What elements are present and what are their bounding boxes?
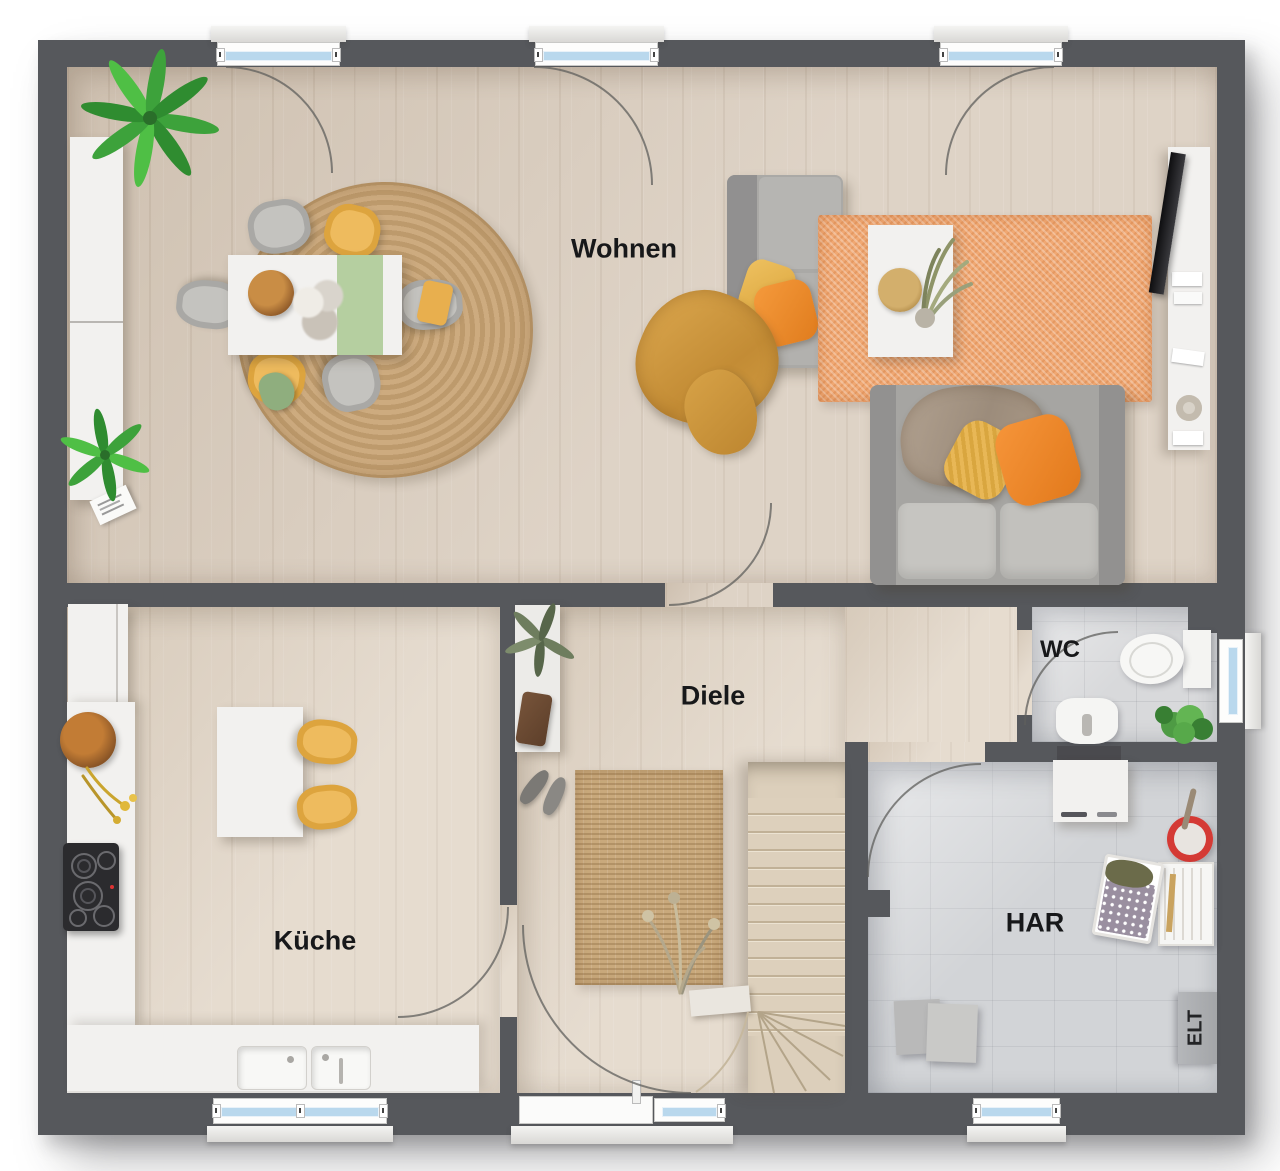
room-label-wohnen: Wohnen [571,234,677,265]
room-label-wc: WC [1040,636,1080,664]
window [217,42,340,66]
doorway-wohnen-diele [665,583,773,607]
faucet-icon [322,1054,329,1061]
floor-plan-canvas: Wohnen Küche Diele WC HAR ELT [0,0,1280,1171]
storage-box [926,1003,978,1063]
room-label-elt: ELT [1185,1010,1208,1046]
window-sill [967,1126,1066,1142]
cooktop [63,843,119,931]
wc-sink [1056,698,1118,744]
window-sill [211,26,346,42]
faucet-stem [339,1058,343,1084]
har-shelf [1158,862,1214,946]
room-diele-floor-arm [845,607,1017,742]
door-sill [511,1126,733,1144]
decor-dried-flowers [288,276,346,342]
room-label-har: HAR [1006,908,1065,939]
wc-window [1219,639,1243,723]
cabinet-divider [70,321,123,323]
water-heater [1053,760,1128,822]
dried-plant-icon [630,878,730,1003]
grass-plant-icon [905,232,975,342]
room-label-kueche: Küche [274,926,357,957]
har-window [973,1098,1060,1124]
door-handle-icon [632,1080,641,1104]
fruit-bowl [60,712,116,768]
window [940,42,1062,66]
window [535,42,658,66]
stair-first-step [689,985,751,1016]
hall-plant-icon [508,606,574,672]
fridge [68,604,128,702]
room-label-diele: Diele [681,681,746,712]
window-sill [1245,633,1261,729]
sink-basin [237,1046,307,1090]
doorway-har [868,742,985,762]
red-bucket [1167,816,1213,862]
toilet-tank [1183,630,1211,688]
wall-stub-har [865,890,890,917]
wall-duct-wc [1188,605,1217,633]
building-outline: Wohnen Küche Diele WC HAR ELT [38,40,1245,1135]
kitchen-window [213,1098,387,1124]
window-sill [207,1126,393,1142]
potted-plant-icon [90,58,210,178]
wc-plant-icon [1142,688,1222,754]
yellow-flowers-icon [73,762,153,832]
window-sill [934,26,1068,42]
doorway-wc [1017,630,1032,715]
faucet-icon [287,1056,294,1063]
door-sidelight [654,1098,725,1122]
kitchen-table [217,707,303,837]
window-sill [529,26,664,42]
doorway-kueche [500,905,517,1017]
potted-plant-small-icon [65,415,145,495]
staircase [748,762,845,1093]
